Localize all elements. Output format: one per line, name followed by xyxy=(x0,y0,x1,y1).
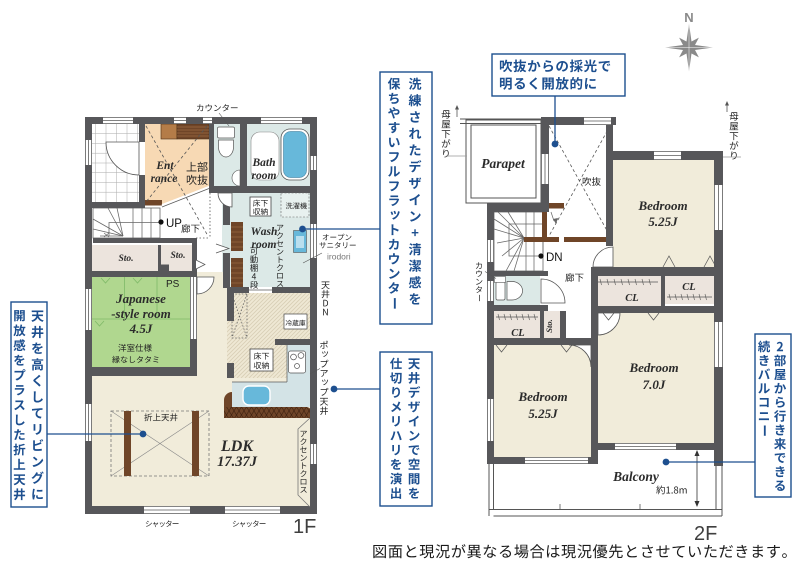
svg-text:5.25J: 5.25J xyxy=(528,406,558,421)
svg-text:Sto.: Sto. xyxy=(118,254,133,264)
svg-text:Bath: Bath xyxy=(251,157,275,169)
svg-text:irodori: irodori xyxy=(327,252,351,262)
svg-text:-style room: -style room xyxy=(111,306,171,321)
svg-text:Bedroom: Bedroom xyxy=(628,360,678,375)
svg-text:7.0J: 7.0J xyxy=(643,377,666,392)
svg-text:Sto.: Sto. xyxy=(170,251,185,261)
svg-text:Parapet: Parapet xyxy=(481,156,526,171)
svg-text:CL: CL xyxy=(682,282,695,293)
svg-text:N: N xyxy=(684,10,693,25)
svg-text:Bedroom: Bedroom xyxy=(637,198,687,213)
svg-text:Bedroom: Bedroom xyxy=(517,389,567,404)
svg-text:DN: DN xyxy=(546,252,563,264)
svg-text:5.25J: 5.25J xyxy=(648,214,678,229)
svg-text:1F: 1F xyxy=(293,516,316,538)
svg-text:2F: 2F xyxy=(694,523,717,545)
svg-text:Balcony: Balcony xyxy=(612,469,660,484)
svg-text:Sto.: Sto. xyxy=(544,319,554,332)
svg-text:room: room xyxy=(252,170,277,182)
svg-text:CL: CL xyxy=(625,293,638,304)
svg-text:17.37J: 17.37J xyxy=(217,454,258,470)
svg-text:UP: UP xyxy=(166,218,182,230)
svg-text:CL: CL xyxy=(511,328,524,339)
svg-text:4.5J: 4.5J xyxy=(129,321,153,336)
svg-text:Ent: Ent xyxy=(155,160,174,172)
svg-text:LDK: LDK xyxy=(220,438,254,455)
svg-text:rance: rance xyxy=(151,173,178,185)
svg-text:PS: PS xyxy=(166,279,180,290)
svg-text:Wash: Wash xyxy=(251,226,278,238)
svg-text:room: room xyxy=(252,239,277,251)
svg-text:Japanese: Japanese xyxy=(115,291,166,306)
